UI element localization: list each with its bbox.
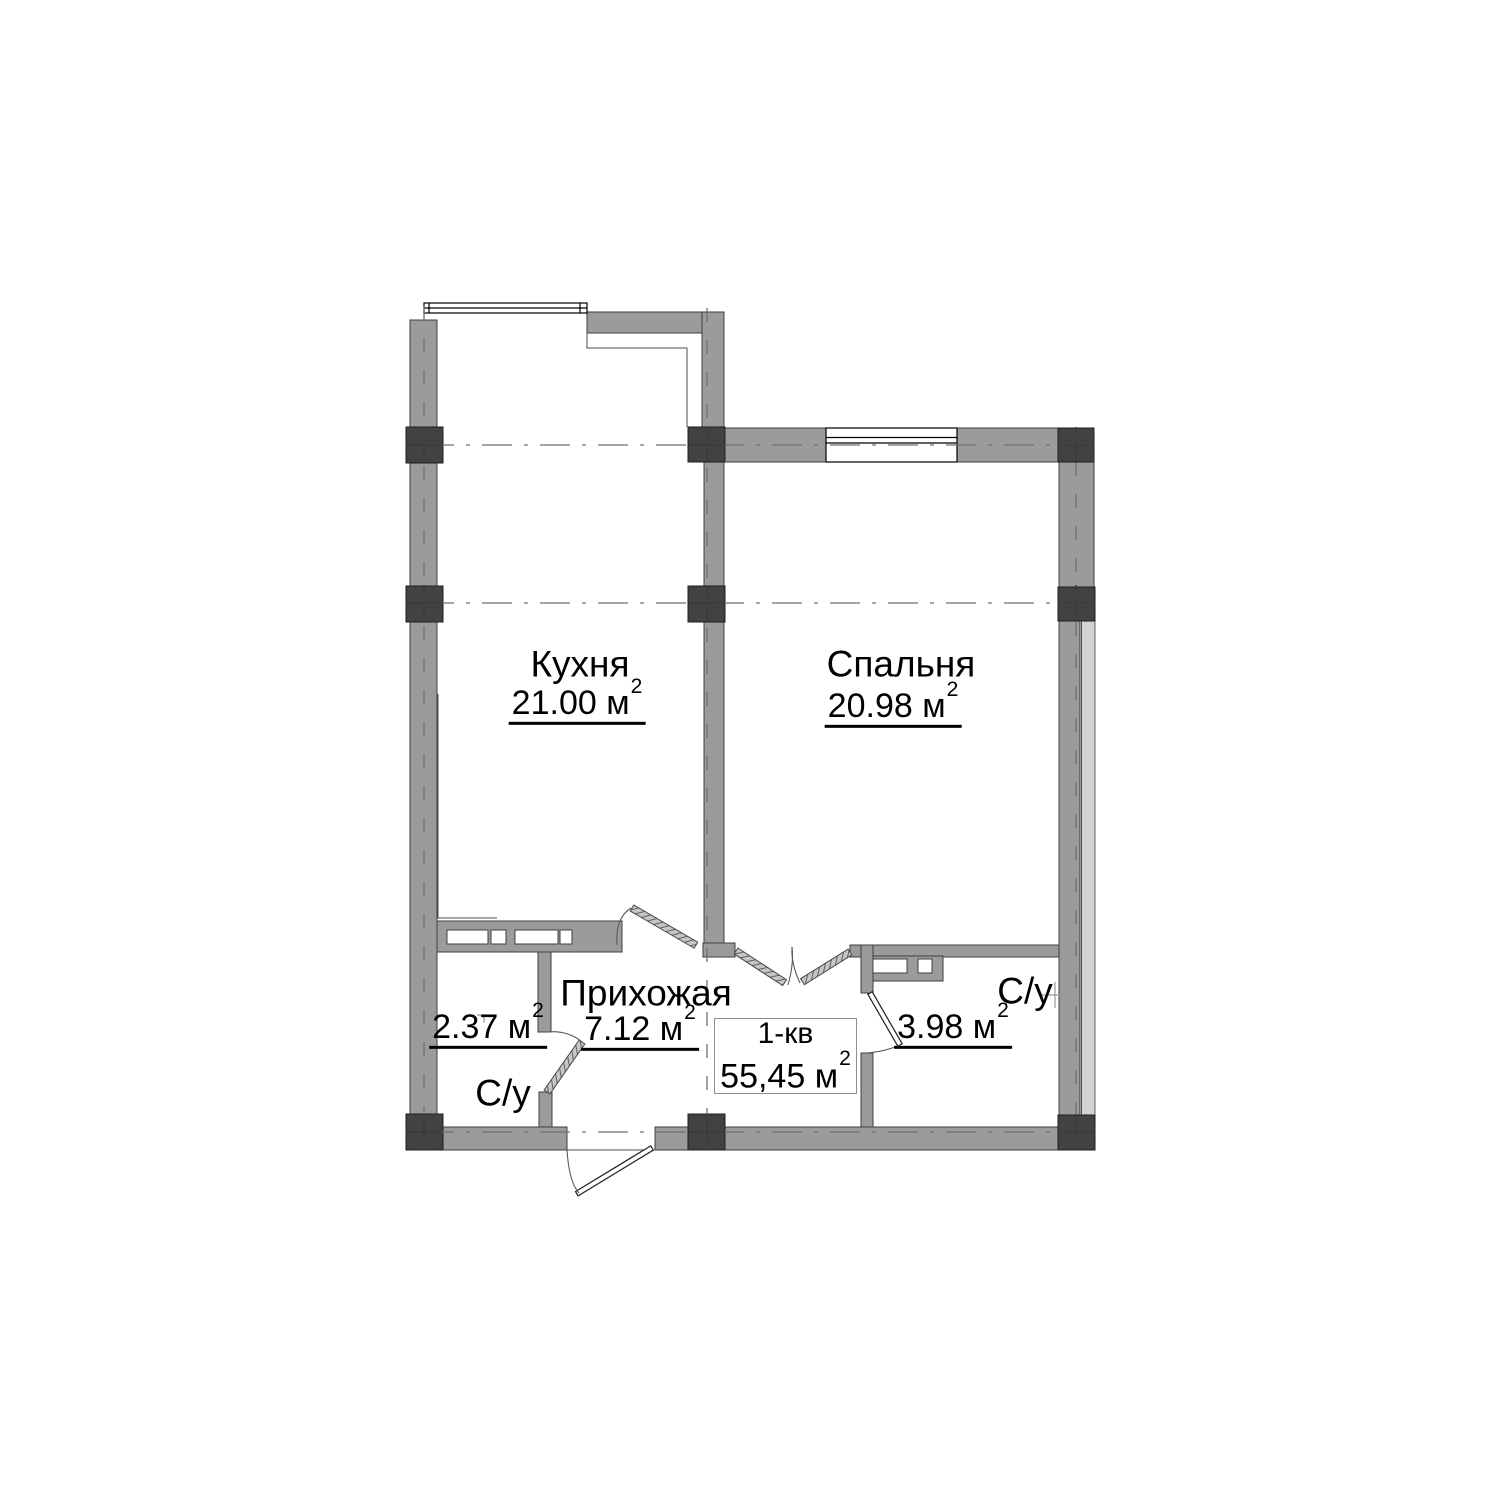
su-left-area-value: 2.37 м [432, 1008, 531, 1046]
kitchen-door-leaf [630, 905, 697, 948]
bathroom-shaft-niche [918, 959, 932, 973]
apartment-type-label: 1-кв [758, 1019, 814, 1049]
hallway-area-sup: 2 [684, 1000, 696, 1023]
floor-plan-canvas: Кухня 21.00 м2 Спальня 20.98 м2 Прихожая… [0, 0, 1500, 1500]
hallway-area-value: 7.12 м [584, 1010, 683, 1048]
apartment-total-area-value: 55,45 м [720, 1057, 838, 1095]
su-right-area-label: 3.98 м2 [894, 1009, 1012, 1049]
bedroom-area-label: 20.98 м2 [825, 688, 962, 728]
wall-bedroom-bottom [850, 945, 1059, 957]
entrance-door-arc [567, 1150, 579, 1193]
su-left-door-arc [546, 1032, 582, 1042]
wall-bathroom-divider-lower [861, 1053, 873, 1128]
balcony-ledge-line [587, 333, 687, 427]
bedroom-area-value: 20.98 м [828, 687, 946, 725]
kitchen-area-sup: 2 [631, 674, 643, 697]
right-balcony-glazing [1080, 621, 1095, 1115]
hallway-area-label: 7.12 м2 [581, 1011, 699, 1051]
kitchen-area-value: 21.00 м [512, 684, 630, 722]
wall-su-divider-lower [539, 1092, 552, 1128]
su-left-area-label: 2.37 м2 [429, 1009, 547, 1049]
entrance-door-leaf [576, 1146, 654, 1196]
apartment-info-box: 1-кв 55,45 м2 [714, 1018, 857, 1094]
kitchen-shaft-niche [491, 930, 506, 944]
kitchen-inner-face-line [438, 694, 497, 918]
corridor-door-arc-right [792, 947, 800, 983]
corridor-door-leaf-right [801, 949, 852, 985]
floor-plan-drawing [0, 0, 1500, 1500]
corridor-door-leaf-left [734, 948, 786, 986]
kitchen-shaft-niche [515, 930, 558, 944]
apartment-total-area-label: 55,45 м2 [720, 1058, 851, 1093]
apartment-total-area-sup: 2 [839, 1047, 851, 1070]
bathroom-shaft-niche [873, 959, 907, 973]
wall-divider-foot [703, 943, 735, 957]
su-right-area-value: 3.98 м [897, 1008, 996, 1046]
wall-bathroom-divider-upper [861, 945, 873, 993]
wall-right-lower [1059, 621, 1080, 1115]
kitchen-shaft-niche [447, 930, 488, 944]
wall-top-left-vertical [702, 312, 724, 428]
su-left-area-sup: 2 [532, 998, 544, 1021]
kitchen-area-label: 21.00 м2 [509, 685, 646, 725]
su-left-room-label: С/у [475, 1075, 531, 1112]
bedroom-area-sup: 2 [947, 677, 959, 700]
hallway-room-label: Прихожая [560, 975, 731, 1012]
kitchen-room-label: Кухня [530, 646, 629, 683]
kitchen-shaft-niche [560, 930, 572, 944]
su-right-area-sup: 2 [997, 998, 1009, 1021]
su-left-door-leaf [544, 1040, 585, 1094]
